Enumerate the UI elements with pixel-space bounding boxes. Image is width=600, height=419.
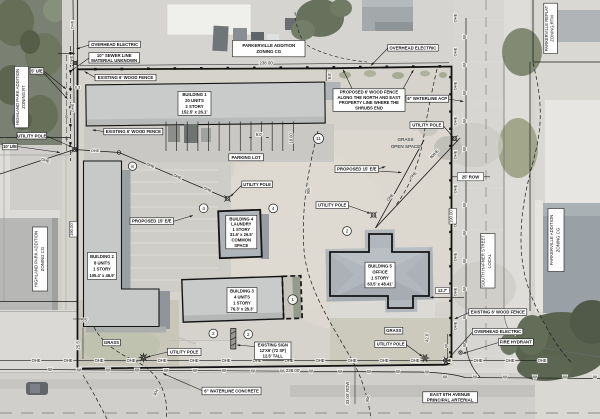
svg-text:W: W <box>462 259 467 263</box>
svg-text:HIGHLAND PARK ADDITION: HIGHLAND PARK ADDITION <box>15 69 20 125</box>
svg-text:OHE: OHE <box>453 321 458 330</box>
svg-text:PRINCIPAL ARTERIAL: PRINCIPAL ARTERIAL <box>427 398 474 403</box>
svg-text:OHE: OHE <box>127 358 136 363</box>
svg-text:UTILITY POLE: UTILITY POLE <box>318 203 347 208</box>
svg-text:4: 4 <box>202 206 205 211</box>
svg-text:GRASS: GRASS <box>397 137 413 142</box>
svg-text:OHE: OHE <box>32 358 41 363</box>
svg-text:BUILDING 1: BUILDING 1 <box>182 92 207 97</box>
svg-text:105.4' x 46.9': 105.4' x 46.9' <box>89 273 114 278</box>
svg-text:UTILITY POLE: UTILITY POLE <box>17 133 46 138</box>
svg-text:W: W <box>462 91 467 95</box>
svg-text:238.00': 238.00' <box>286 368 300 373</box>
svg-text:906: 906 <box>306 187 312 195</box>
svg-text:W: W <box>533 375 537 380</box>
svg-text:6" WATERLINE CONCRETE: 6" WATERLINE CONCRETE <box>204 389 259 394</box>
svg-text:OHE: OHE <box>453 13 458 22</box>
svg-text:OHE: OHE <box>538 358 547 363</box>
svg-text:SHRUBS END: SHRUBS END <box>355 106 383 111</box>
svg-text:PARKERVILLE REPLAT: PARKERVILLE REPLAT <box>544 5 549 51</box>
svg-text:OHE: OHE <box>453 81 458 90</box>
svg-text:OFFICE: OFFICE <box>372 269 388 274</box>
svg-text:OHE: OHE <box>316 358 325 363</box>
svg-text:BUILDING 2: BUILDING 2 <box>90 254 114 259</box>
svg-text:OVERHEAD ELECTRIC: OVERHEAD ELECTRIC <box>474 329 521 334</box>
svg-text:190.00': 190.00' <box>449 209 454 223</box>
svg-text:OHE: OHE <box>453 116 458 125</box>
svg-text:OHE: OHE <box>95 358 104 363</box>
svg-text:5' U/E: 5' U/E <box>31 68 43 73</box>
svg-text:ZONING:RTM: ZONING:RTM <box>550 15 555 42</box>
svg-text:PROPOSED 15' E/E: PROPOSED 15' E/E <box>132 219 172 224</box>
svg-text:W: W <box>193 368 197 373</box>
svg-text:W: W <box>135 368 139 373</box>
svg-text:LAUNDRY: LAUNDRY <box>231 222 252 227</box>
svg-text:OHE: OHE <box>70 103 75 112</box>
svg-text:6" WATERLINE ACP: 6" WATERLINE ACP <box>407 96 447 101</box>
svg-text:W: W <box>309 369 313 374</box>
svg-text:W: W <box>462 287 467 291</box>
svg-text:OVERHEAD ELECTRIC: OVERHEAD ELECTRIC <box>389 45 436 50</box>
svg-text:UTILITY POLE: UTILITY POLE <box>412 123 441 128</box>
svg-text:W: W <box>462 343 467 347</box>
svg-text:11: 11 <box>316 136 321 141</box>
svg-text:OHE: OHE <box>91 148 100 153</box>
svg-text:W: W <box>462 231 467 235</box>
svg-text:76.3' x 28.3': 76.3' x 28.3' <box>231 307 254 312</box>
svg-text:PARKERVILLE ADDITION: PARKERVILLE ADDITION <box>242 43 295 48</box>
svg-text:10' U/E: 10' U/E <box>3 144 17 149</box>
svg-text:OHE: OHE <box>453 47 458 56</box>
svg-text:EXISTING 6' WOOD FENCE: EXISTING 6' WOOD FENCE <box>471 310 525 315</box>
svg-text:2: 2 <box>247 332 250 337</box>
svg-text:190.00': 190.00' <box>69 222 74 236</box>
svg-text:FIRE HYDRANT: FIRE HYDRANT <box>500 340 532 345</box>
svg-text:SPACE: SPACE <box>234 243 248 248</box>
svg-text:12.7': 12.7' <box>438 288 447 293</box>
svg-text:OHE: OHE <box>474 358 483 363</box>
svg-text:8 UNITS: 8 UNITS <box>94 260 110 265</box>
svg-text:9.0': 9.0' <box>256 132 263 137</box>
svg-text:1 STORY: 1 STORY <box>232 227 250 232</box>
svg-text:UTILITY POLE: UTILITY POLE <box>170 349 199 354</box>
svg-text:W: W <box>425 369 429 374</box>
svg-text:OHE: OHE <box>453 150 458 159</box>
svg-text:42.6': 42.6' <box>425 333 430 342</box>
svg-text:63.5' x 48.41': 63.5' x 48.41' <box>367 282 392 287</box>
svg-text:2: 2 <box>212 331 215 336</box>
svg-text:W: W <box>563 375 567 380</box>
svg-text:PROPOSED 15' E/E: PROPOSED 15' E/E <box>337 167 377 172</box>
svg-text:PARKING LOT: PARKING LOT <box>231 155 261 160</box>
svg-text:W: W <box>462 203 467 207</box>
svg-text:S: S <box>65 115 68 119</box>
svg-text:25.5': 25.5' <box>76 340 81 349</box>
svg-text:OHE: OHE <box>222 358 231 363</box>
svg-text:ZONING:CG: ZONING:CG <box>40 246 45 271</box>
svg-text:W: W <box>503 375 507 380</box>
svg-text:18.00': 18.00' <box>289 132 294 143</box>
svg-text:W: W <box>77 367 81 372</box>
svg-text:OPEN SPACE: OPEN SPACE <box>391 144 421 149</box>
svg-text:OHE: OHE <box>380 358 389 363</box>
svg-text:OHE: OHE <box>70 20 75 29</box>
svg-text:152.5' x 26.1': 152.5' x 26.1' <box>182 110 208 115</box>
svg-text:PARKERVILLE ADDITION: PARKERVILLE ADDITION <box>549 215 554 265</box>
svg-text:8: 8 <box>131 164 134 169</box>
svg-text:COMMON: COMMON <box>232 238 252 243</box>
svg-text:238.00': 238.00' <box>260 61 274 66</box>
svg-text:UTILITY POLE: UTILITY POLE <box>243 182 271 187</box>
svg-text:OVERHEAD ELECTRIC: OVERHEAD ELECTRIC <box>91 42 138 47</box>
svg-text:W: W <box>462 35 467 39</box>
svg-text:W: W <box>396 369 400 374</box>
svg-text:PROPOSED 6' WOOD FENCE: PROPOSED 6' WOOD FENCE <box>340 90 398 95</box>
svg-text:GRASS: GRASS <box>386 328 401 333</box>
svg-text:1: 1 <box>291 297 294 302</box>
svg-text:W: W <box>367 369 371 374</box>
svg-text:OHE: OHE <box>506 358 515 363</box>
svg-text:OHE: OHE <box>453 287 458 296</box>
svg-text:EAST 6TH AVENUE: EAST 6TH AVENUE <box>430 392 470 397</box>
svg-text:ZONING CG: ZONING CG <box>256 49 281 54</box>
svg-text:1 STORY: 1 STORY <box>233 301 251 306</box>
svg-text:PROPERTY LINE WHERE THE: PROPERTY LINE WHERE THE <box>339 100 399 105</box>
svg-text:W: W <box>462 119 467 123</box>
svg-text:OHE: OHE <box>69 55 74 64</box>
svg-text:4 UNITS: 4 UNITS <box>234 295 250 300</box>
svg-text:UTILITY POLE: UTILITY POLE <box>377 342 405 347</box>
svg-text:SOUTH HAFNER STREET: SOUTH HAFNER STREET <box>481 235 486 287</box>
svg-text:9.5': 9.5' <box>327 72 332 79</box>
svg-text:S: S <box>65 92 68 96</box>
svg-text:GRASS: GRASS <box>104 340 119 345</box>
svg-text:OHE: OHE <box>411 358 420 363</box>
svg-text:BUILDING 5: BUILDING 5 <box>368 263 392 268</box>
svg-text:W: W <box>338 369 342 374</box>
svg-text:W: W <box>164 368 168 373</box>
svg-text:EXISTING 6' WOOD FENCE: EXISTING 6' WOOD FENCE <box>106 129 162 134</box>
svg-text:W: W <box>280 369 284 374</box>
svg-text:MATERIAL UNKNOWN: MATERIAL UNKNOWN <box>91 58 137 63</box>
svg-text:ZONING CG: ZONING CG <box>556 227 561 252</box>
svg-text:OHE: OHE <box>158 358 167 363</box>
svg-text:31.6' x 26.5': 31.6' x 26.5' <box>230 232 253 237</box>
svg-text:HIGHLAND PARK ADDITION: HIGHLAND PARK ADDITION <box>34 231 39 287</box>
svg-text:W: W <box>473 375 477 380</box>
svg-text:OHE: OHE <box>453 252 458 261</box>
svg-text:1 STORY: 1 STORY <box>371 276 389 281</box>
svg-text:OHE: OHE <box>348 358 357 363</box>
svg-text:LOCAL: LOCAL <box>487 253 492 268</box>
svg-text:EXISTING 6' WOOD FENCE: EXISTING 6' WOOD FENCE <box>98 75 154 80</box>
svg-text:W: W <box>48 367 52 372</box>
svg-text:25' ROW: 25' ROW <box>462 174 480 179</box>
svg-text:OHE: OHE <box>190 358 199 363</box>
svg-text:OHE: OHE <box>453 184 458 193</box>
svg-text:4: 4 <box>272 206 275 211</box>
svg-text:W: W <box>593 375 597 380</box>
svg-text:12.5' TALL: 12.5' TALL <box>263 354 284 359</box>
svg-text:W: W <box>251 368 255 373</box>
svg-text:W: W <box>462 147 467 151</box>
svg-text:2 STORY: 2 STORY <box>185 104 203 109</box>
svg-text:BUILDING 4: BUILDING 4 <box>229 216 253 221</box>
svg-text:5.5': 5.5' <box>81 318 88 323</box>
svg-text:12'X6' (72 SF): 12'X6' (72 SF) <box>260 348 287 353</box>
svg-text:20 UNITS: 20 UNITS <box>185 98 204 103</box>
svg-text:EXISTING SIGN: EXISTING SIGN <box>258 343 288 348</box>
svg-text:W: W <box>444 344 449 348</box>
svg-text:33.00' ROW: 33.00' ROW <box>345 382 350 405</box>
svg-text:6.3: 6.3 <box>75 85 81 90</box>
svg-text:W: W <box>443 375 447 380</box>
svg-text:OHE: OHE <box>64 358 73 363</box>
svg-text:W: W <box>106 368 110 373</box>
svg-text:W: W <box>222 368 226 373</box>
svg-text:2: 2 <box>346 229 349 234</box>
svg-text:S: S <box>65 137 68 141</box>
svg-text:BUILDING 3: BUILDING 3 <box>230 289 254 294</box>
svg-text:W: W <box>462 63 467 67</box>
svg-text:ALONG THE NORTH AND EAST: ALONG THE NORTH AND EAST <box>337 95 401 100</box>
svg-text:ZONING:RT: ZONING:RT <box>21 85 26 109</box>
svg-text:1 STORY: 1 STORY <box>93 267 111 272</box>
